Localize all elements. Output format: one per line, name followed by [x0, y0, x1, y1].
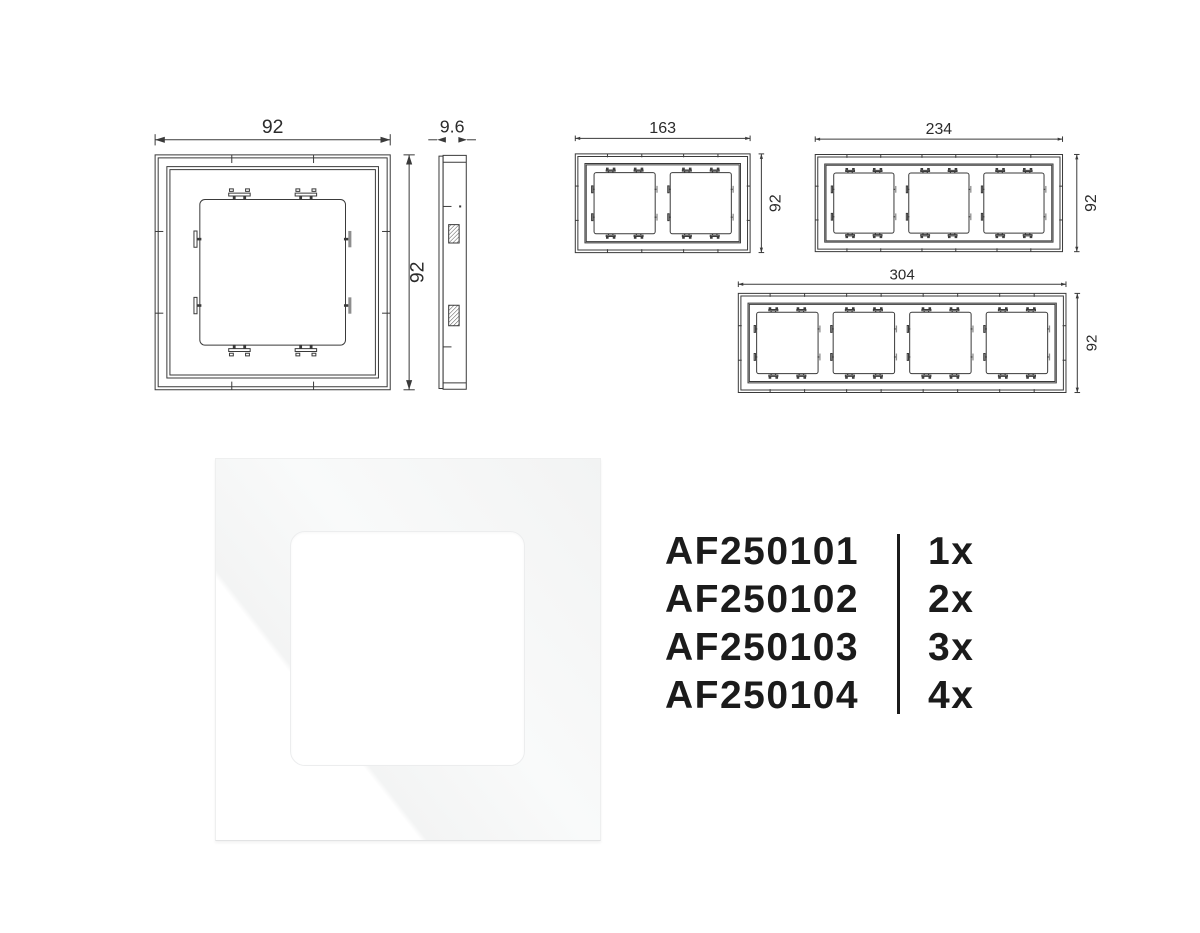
gang-count-column: 1x 2x 3x 4x — [900, 528, 974, 720]
product-photo-frame-opening — [290, 531, 525, 766]
dim-label-height-1gang: 92 — [406, 262, 428, 284]
dim-label-width-2gang: 163 — [649, 119, 676, 137]
gang-count: 2x — [928, 576, 974, 624]
article-code: AF250103 — [665, 624, 897, 672]
dim-label-width-4gang: 304 — [890, 267, 915, 284]
frame-graphic-4gang — [738, 281, 1080, 392]
article-code: AF250104 — [665, 672, 897, 720]
drawing-4gang-front-view: 304 92 — [734, 274, 1094, 399]
gang-count: 3x — [928, 624, 974, 672]
product-datasheet-page: 92 92 9.6 163 92 234 92 304 92 AF250101 — [0, 0, 1200, 933]
frame-graphic-1gang — [155, 134, 415, 390]
article-code: AF250101 — [665, 528, 897, 576]
dim-label-height-2gang: 92 — [767, 194, 785, 212]
article-number-table: AF250101 AF250102 AF250103 AF250104 1x 2… — [665, 528, 974, 720]
article-code-column: AF250101 AF250102 AF250103 AF250104 — [665, 528, 897, 720]
article-code: AF250102 — [665, 576, 897, 624]
dim-label-depth: 9.6 — [440, 116, 465, 136]
frame-graphic-3gang — [815, 136, 1079, 251]
dim-label-width-1gang: 92 — [262, 116, 284, 138]
dim-label-height-4gang: 92 — [1084, 335, 1101, 352]
dim-label-width-3gang: 234 — [926, 121, 953, 138]
dim-label-height-3gang: 92 — [1083, 194, 1100, 212]
gang-count: 1x — [928, 528, 974, 576]
drawing-3gang-front-view: 234 92 — [811, 127, 1090, 258]
product-photo-white-frame — [215, 458, 601, 841]
drawing-2gang-front-view: 163 92 — [571, 126, 778, 259]
drawing-side-profile-view: 9.6 — [427, 114, 478, 400]
drawing-1gang-front-view: 92 92 — [150, 114, 426, 400]
frame-graphic-side — [428, 137, 476, 389]
frame-graphic-2gang — [575, 136, 764, 253]
gang-count: 4x — [928, 672, 974, 720]
